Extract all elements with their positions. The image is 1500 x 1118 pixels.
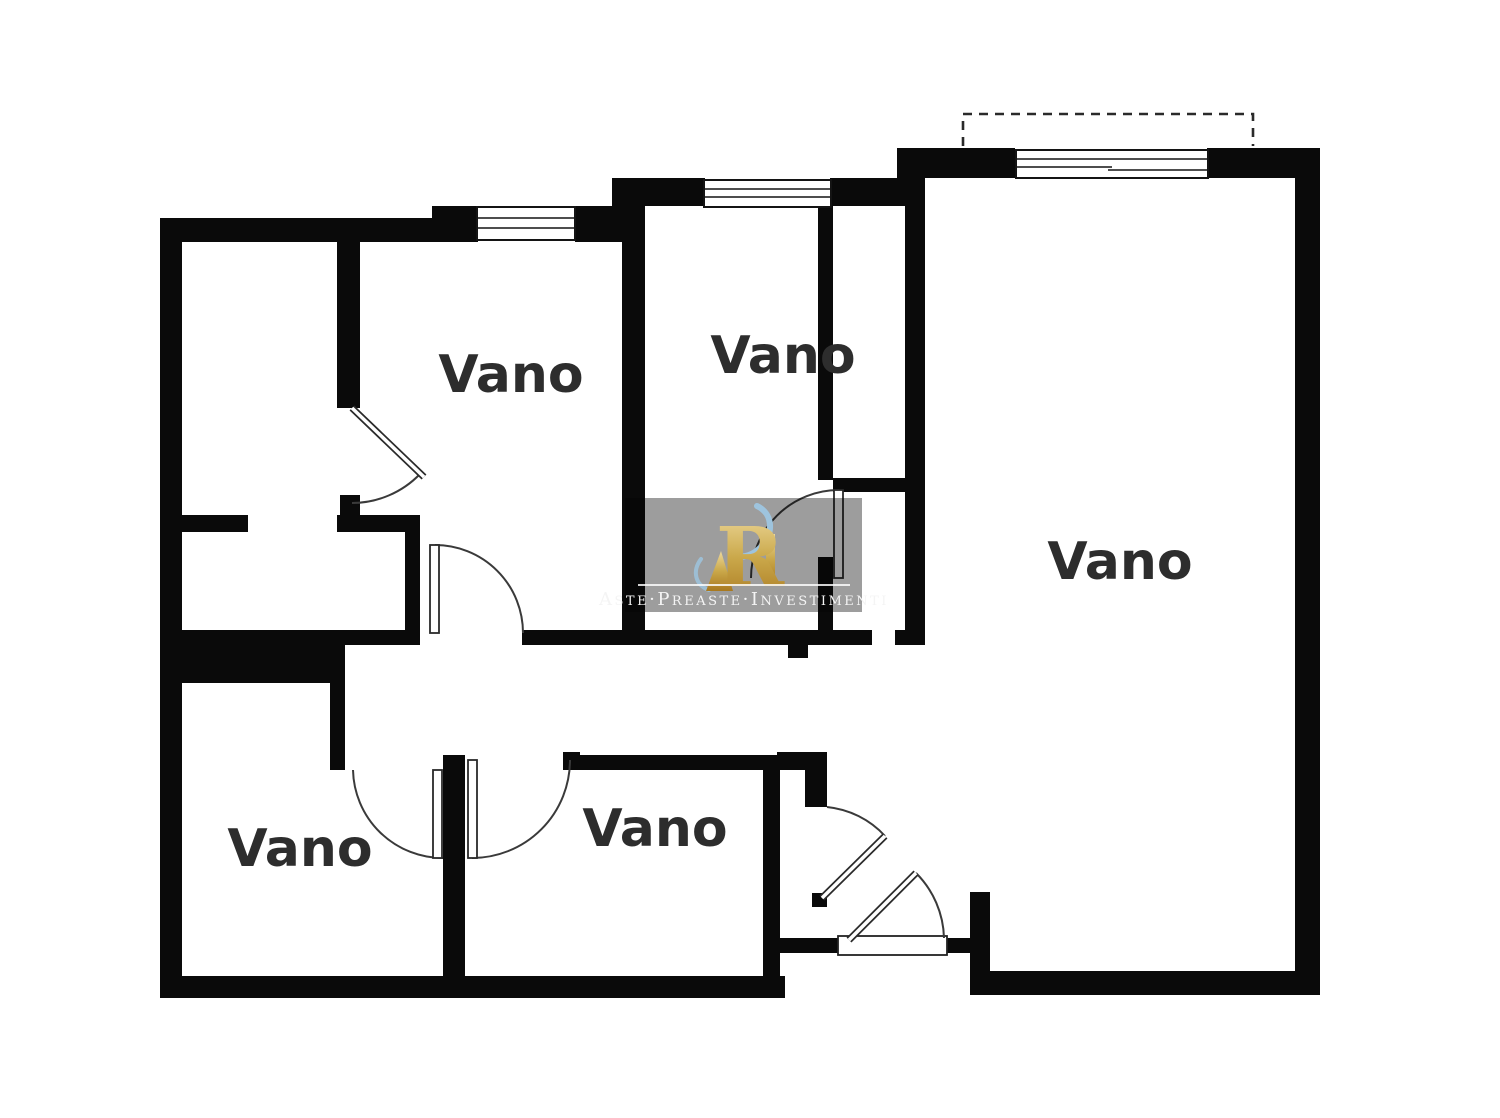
watermark: R Aste·Preaste·Investimenti: [598, 498, 889, 612]
room-label-vano-3: Vano: [1047, 532, 1192, 592]
outer-wall-bottom-right: [970, 971, 1320, 995]
outer-wall-right: [1295, 148, 1320, 993]
outer-wall-left: [160, 218, 182, 998]
outer-wall-bottom-left: [160, 976, 785, 998]
wall-entry-south-left: [777, 938, 838, 953]
wall-room1-east-upper: [337, 242, 360, 408]
wall-entry-south-right: [947, 938, 990, 953]
outer-wall-top-a: [160, 218, 432, 242]
wall-corridor-north-right: [645, 630, 872, 645]
balcony-dashed-outline: [963, 114, 1253, 146]
outer-wall-top-a2-left: [432, 206, 478, 242]
wall-corridor-north-left: [160, 630, 418, 645]
wall-midroom-east: [763, 770, 780, 976]
wall-thick-block: [160, 645, 345, 683]
door-icon: [352, 408, 424, 503]
room-label-vano-5: Vano: [582, 799, 727, 859]
floor-plan-svg: Vano Vano Vano Vano Vano R Aste·Preaste·…: [0, 0, 1500, 1118]
wall-room1-south-left: [160, 515, 248, 532]
outer-wall-top-b-left: [633, 178, 705, 206]
door-icon: [822, 807, 885, 898]
outer-wall-top-c-left: [925, 148, 1015, 178]
watermark-brand-text: Aste·Preaste·Investimenti: [598, 589, 889, 610]
door-icon: [468, 760, 570, 858]
room-label-vano-1: Vano: [438, 345, 583, 405]
wall-leftroom-jamb: [330, 683, 345, 770]
wall-center-stub: [443, 755, 465, 976]
wall-vano1-west-lower: [405, 515, 420, 645]
window-icon: [704, 180, 831, 207]
outer-wall-step-bc: [897, 148, 925, 206]
room-label-vano-2: Vano: [710, 326, 855, 386]
wall-bigroom-west: [905, 206, 925, 645]
wall-corridor-stub: [788, 645, 808, 658]
window-icon: [477, 207, 575, 240]
wall-closet-divider: [833, 478, 925, 492]
room-label-vano-4: Vano: [227, 819, 372, 879]
window-icon: [1016, 150, 1208, 178]
wall-bath-jamb: [805, 752, 827, 807]
floorplan-image: Vano Vano Vano Vano Vano R Aste·Preaste·…: [0, 0, 1500, 1118]
door-icon: [430, 545, 523, 633]
door-icon: [838, 873, 947, 955]
outer-wall-top-b-right: [830, 178, 905, 206]
wall-corridor-south: [563, 755, 777, 770]
